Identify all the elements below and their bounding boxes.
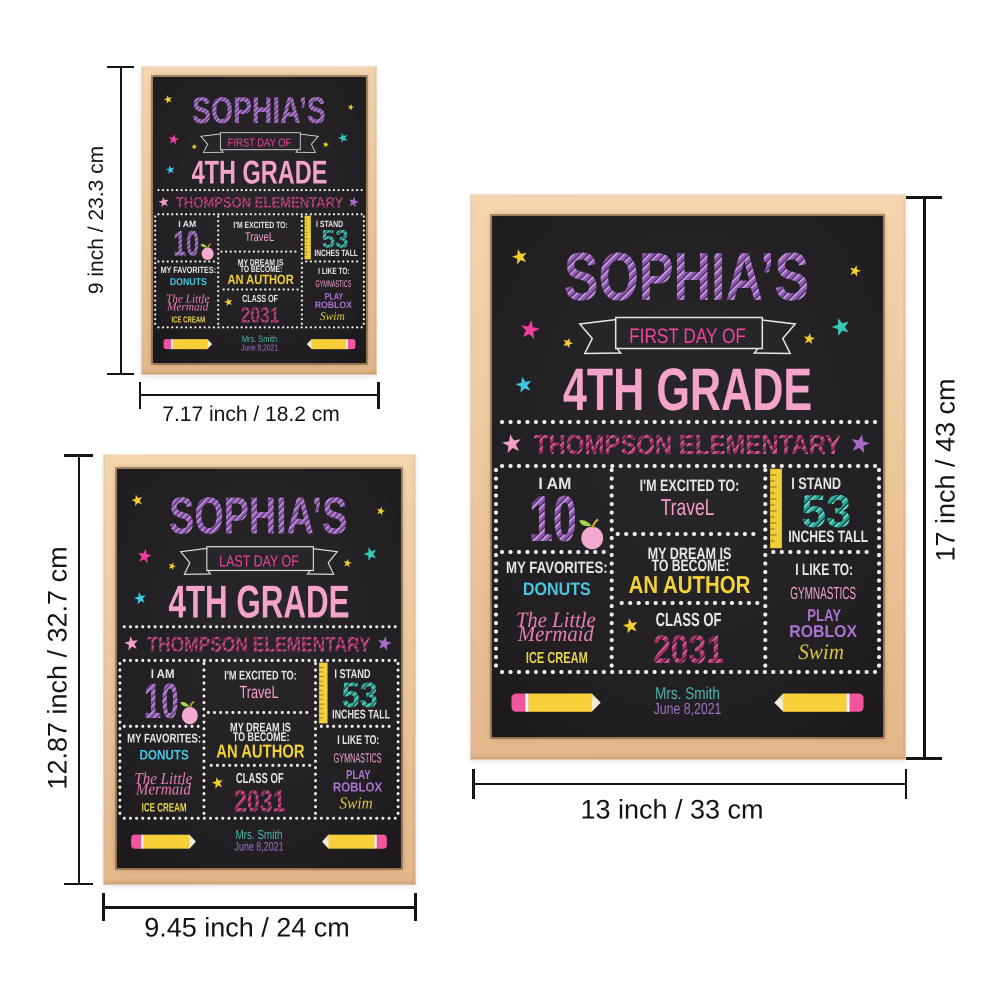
svg-text:FIRST DAY OF: FIRST DAY OF	[629, 325, 746, 348]
svg-text:LAST DAY OF: LAST DAY OF	[219, 552, 299, 570]
svg-text:FIRST DAY OF: FIRST DAY OF	[227, 137, 291, 150]
